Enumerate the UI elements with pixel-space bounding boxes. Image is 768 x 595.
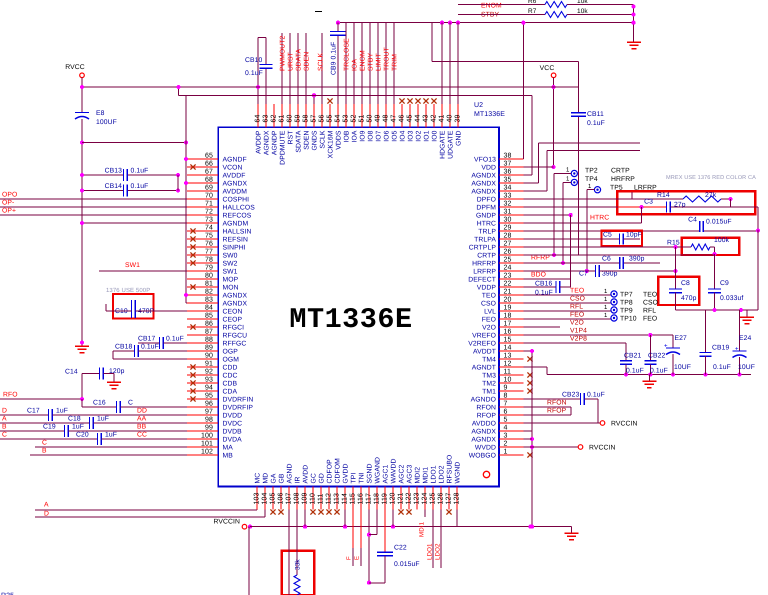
svg-text:1: 1 (604, 296, 608, 303)
svg-text:70: 70 (205, 192, 213, 199)
svg-text:73: 73 (205, 216, 213, 223)
svg-text:IO2: IO2 (416, 130, 423, 141)
svg-text:SCLK: SCLK (318, 52, 325, 71)
svg-text:C: C (128, 400, 133, 407)
svg-text:TM3: TM3 (482, 372, 496, 379)
svg-text:C8: C8 (681, 280, 690, 287)
svg-text:127: 127 (445, 493, 452, 505)
svg-text:44: 44 (414, 115, 421, 123)
svg-text:28: 28 (504, 232, 512, 239)
svg-text:60: 60 (286, 115, 293, 123)
svg-text:FEO: FEO (643, 316, 657, 323)
svg-text:32: 32 (504, 200, 512, 207)
svg-text:TPI: TPI (351, 473, 358, 484)
svg-text:IO0: IO0 (432, 130, 439, 141)
svg-text:65: 65 (205, 152, 213, 159)
svg-text:10UF: 10UF (674, 364, 691, 371)
svg-text:16: 16 (504, 328, 512, 335)
svg-text:MDI1: MDI1 (423, 467, 430, 484)
svg-text:RVCCIN: RVCCIN (611, 421, 638, 428)
svg-text:MB: MB (223, 452, 234, 459)
svg-text:TRLPA: TRLPA (474, 236, 496, 243)
svg-text:B: B (2, 424, 7, 431)
svg-text:OGP: OGP (223, 348, 239, 355)
svg-text:CB17: CB17 (138, 336, 156, 343)
svg-text:117: 117 (365, 493, 372, 504)
svg-text:C4: C4 (688, 217, 697, 224)
svg-text:114: 114 (341, 493, 348, 504)
svg-text:10k: 10k (577, 0, 588, 5)
svg-text:MA: MA (223, 444, 234, 451)
svg-text:V2O: V2O (482, 324, 496, 331)
svg-text:27k: 27k (705, 192, 717, 199)
svg-text:75: 75 (205, 232, 213, 239)
svg-text:C20: C20 (76, 432, 89, 439)
svg-text:RFGCU: RFGCU (223, 332, 248, 339)
svg-text:GC: GC (311, 473, 318, 483)
svg-text:0.1uF: 0.1uF (131, 167, 149, 174)
svg-text:RFL: RFL (643, 308, 656, 315)
svg-text:37: 37 (504, 160, 512, 167)
svg-text:85: 85 (205, 312, 213, 319)
svg-text:SINPHI: SINPHI (223, 244, 246, 251)
svg-text:AGNDX: AGNDX (471, 180, 496, 187)
svg-text:MDI2: MDI2 (415, 467, 422, 484)
svg-text:IO8: IO8 (368, 130, 375, 141)
svg-text:1uF: 1uF (105, 432, 117, 439)
svg-text:AA: AA (137, 416, 147, 423)
svg-text:OGM: OGM (223, 356, 240, 363)
svg-text:AGNDO: AGNDO (471, 396, 496, 403)
svg-text:3: 3 (504, 432, 508, 439)
svg-text:50: 50 (366, 115, 373, 123)
svg-text:TEO: TEO (643, 292, 657, 299)
svg-text:WVDD: WVDD (475, 444, 496, 451)
svg-text:27: 27 (504, 240, 512, 247)
svg-text:66: 66 (205, 160, 213, 167)
svg-text:45: 45 (406, 115, 413, 123)
svg-text:TP7: TP7 (620, 292, 633, 299)
svg-text:109: 109 (301, 493, 308, 505)
svg-text:E27: E27 (675, 335, 688, 342)
svg-text:SW1: SW1 (223, 268, 238, 275)
svg-text:1uF: 1uF (56, 408, 68, 415)
svg-text:100: 100 (201, 432, 213, 439)
svg-text:C22: C22 (394, 545, 407, 552)
svg-text:RFSUBO: RFSUBO (447, 455, 454, 484)
svg-text:IO7: IO7 (376, 130, 383, 141)
svg-text:LDO2: LDO2 (439, 465, 446, 483)
svg-text:IO6: IO6 (384, 130, 391, 141)
svg-text:69: 69 (205, 184, 213, 191)
svg-text:0.1uF: 0.1uF (166, 336, 184, 343)
svg-text:TRIM: TRIM (392, 54, 399, 71)
svg-text:95: 95 (205, 392, 213, 399)
svg-text:TRCLOSE: TRCLOSE (344, 38, 351, 71)
svg-text:118: 118 (373, 493, 380, 504)
svg-text:71: 71 (205, 200, 213, 207)
svg-text:RFO: RFO (3, 392, 18, 399)
svg-text:12: 12 (504, 360, 512, 367)
svg-text:123: 123 (413, 493, 420, 505)
svg-text:25: 25 (504, 256, 512, 263)
svg-text:C17: C17 (27, 408, 40, 415)
svg-text:D: D (2, 408, 7, 415)
svg-text:GVDD: GVDD (343, 463, 350, 483)
svg-text:IO9: IO9 (360, 130, 367, 141)
svg-text:DD: DD (137, 408, 147, 415)
svg-text:IOB: IOB (344, 130, 351, 142)
svg-text:7: 7 (504, 400, 508, 407)
svg-text:120p: 120p (109, 368, 125, 375)
svg-text:FEO: FEO (482, 316, 496, 323)
svg-text:AGNDM: AGNDM (223, 220, 249, 227)
svg-text:C18: C18 (68, 416, 81, 423)
svg-text:DVDRFIN: DVDRFIN (223, 396, 254, 403)
svg-text:REFSIN: REFSIN (223, 236, 249, 243)
svg-text:CRTP: CRTP (477, 252, 496, 259)
svg-text:26: 26 (504, 248, 512, 255)
svg-text:0.1uF: 0.1uF (626, 368, 644, 375)
svg-text:64: 64 (254, 115, 261, 123)
svg-text:0.015uF: 0.015uF (706, 219, 732, 226)
svg-text:24: 24 (504, 264, 512, 271)
svg-text:AVDDO: AVDDO (472, 420, 496, 427)
svg-text:1376 USE 500P: 1376 USE 500P (106, 287, 150, 294)
svg-text:SDATA: SDATA (296, 130, 303, 153)
svg-text:AGNDX: AGNDX (471, 172, 496, 179)
svg-text:88: 88 (205, 336, 213, 343)
svg-text:AVDDF: AVDDF (223, 172, 246, 179)
svg-text:115: 115 (349, 493, 356, 504)
svg-text:IO5: IO5 (392, 130, 399, 141)
svg-text:HDGATE: HDGATE (440, 130, 447, 159)
svg-text:GNDP: GNDP (476, 212, 496, 219)
svg-text:VDDP: VDDP (477, 284, 497, 291)
svg-text:AGNDX: AGNDX (223, 180, 248, 187)
svg-text:125: 125 (429, 493, 436, 505)
svg-text:1: 1 (566, 176, 570, 183)
svg-text:98: 98 (205, 416, 213, 423)
svg-text:TP9: TP9 (620, 308, 633, 315)
svg-text:CB14: CB14 (105, 183, 123, 190)
svg-text:79: 79 (205, 264, 213, 271)
svg-text:SCLK: SCLK (320, 130, 327, 149)
svg-text:0.1uF: 0.1uF (587, 120, 605, 127)
svg-text:CB22: CB22 (648, 353, 666, 360)
svg-text:91: 91 (205, 360, 213, 367)
svg-text:15: 15 (504, 336, 512, 343)
svg-text:AGNDX: AGNDX (471, 428, 496, 435)
svg-text:CEON: CEON (223, 308, 243, 315)
svg-text:UDGATE: UDGATE (448, 130, 455, 159)
svg-text:101: 101 (201, 440, 213, 447)
svg-text:C: C (2, 432, 7, 439)
svg-text:V2REFO: V2REFO (468, 340, 496, 347)
svg-text:GNDS: GNDS (312, 130, 319, 150)
svg-text:CB18: CB18 (115, 344, 133, 351)
svg-text:4: 4 (504, 424, 508, 431)
svg-text:C19: C19 (43, 424, 56, 431)
svg-text:390p: 390p (602, 271, 618, 278)
svg-text:11: 11 (504, 368, 511, 375)
svg-text:14: 14 (504, 344, 512, 351)
svg-text:AGC2: AGC2 (399, 464, 406, 483)
svg-text:A: A (2, 416, 7, 423)
svg-text:RFRP: RFRP (531, 255, 550, 262)
svg-text:A: A (44, 502, 49, 509)
svg-text:AGNDX: AGNDX (264, 130, 271, 155)
svg-text:46: 46 (398, 115, 405, 123)
svg-text:43: 43 (422, 115, 429, 123)
svg-text:1uF: 1uF (97, 416, 109, 423)
svg-text:CB10: CB10 (245, 57, 263, 64)
svg-text:AGNDX: AGNDX (471, 188, 496, 195)
svg-text:GND: GND (456, 131, 463, 146)
svg-text:DPFO: DPFO (477, 196, 496, 203)
svg-text:CSO: CSO (570, 296, 585, 303)
svg-text:CC: CC (137, 432, 147, 439)
svg-text:COSPHI: COSPHI (223, 196, 250, 203)
svg-text:DVDC: DVDC (223, 420, 243, 427)
svg-text:RFON: RFON (476, 404, 496, 411)
svg-text:1: 1 (604, 288, 608, 295)
svg-text:DVDB: DVDB (223, 428, 243, 435)
svg-text:0.1uF: 0.1uF (141, 344, 159, 351)
svg-text:10UF: 10UF (738, 364, 755, 371)
svg-text:C7: C7 (579, 271, 588, 278)
svg-text:BDO: BDO (531, 272, 546, 279)
svg-text:59: 59 (294, 115, 301, 123)
svg-text:DPDMUTE: DPDMUTE (280, 130, 287, 165)
svg-text:10: 10 (504, 376, 512, 383)
svg-text:R15: R15 (667, 240, 680, 247)
svg-text:SDEN: SDEN (304, 131, 311, 150)
svg-text:HRFRP: HRFRP (611, 176, 635, 183)
svg-text:20: 20 (504, 296, 512, 303)
svg-text:IO4: IO4 (400, 130, 407, 141)
svg-text:72: 72 (205, 208, 213, 215)
svg-text:0.1uF: 0.1uF (650, 368, 668, 375)
svg-text:470p: 470p (681, 295, 697, 302)
svg-text:29: 29 (504, 224, 512, 231)
svg-text:36: 36 (504, 168, 512, 175)
svg-text:87: 87 (205, 328, 213, 335)
svg-text:68: 68 (205, 176, 213, 183)
svg-text:CSO: CSO (481, 300, 496, 307)
svg-text:RFL: RFL (570, 304, 583, 311)
svg-text:18: 18 (504, 312, 512, 319)
svg-text:CB19: CB19 (712, 344, 730, 351)
svg-text:HTRC: HTRC (477, 220, 496, 227)
svg-text:38: 38 (504, 152, 512, 159)
svg-text:102: 102 (201, 448, 213, 455)
svg-text:AGNDX: AGNDX (223, 292, 248, 299)
svg-text:34: 34 (504, 184, 512, 191)
svg-text:111: 111 (317, 494, 324, 505)
svg-text:RVCCIN: RVCCIN (213, 519, 240, 526)
svg-text:LDO1: LDO1 (431, 465, 438, 483)
svg-text:104: 104 (261, 493, 268, 505)
svg-text:116: 116 (357, 493, 364, 504)
svg-text:0.1uF: 0.1uF (131, 183, 149, 190)
svg-text:MT1336E: MT1336E (474, 111, 505, 118)
svg-text:IOA: IOA (352, 59, 359, 71)
svg-text:CDB: CDB (223, 380, 238, 387)
svg-text:AVDD: AVDD (303, 465, 310, 484)
svg-text:RVCCIN: RVCCIN (589, 445, 616, 452)
svg-text:58: 58 (302, 115, 309, 123)
svg-text:AGNDP: AGNDP (272, 130, 279, 155)
svg-text:WGAND: WGAND (375, 457, 382, 484)
svg-text:120: 120 (389, 493, 396, 505)
svg-text:TP4: TP4 (585, 176, 598, 183)
svg-text:TM4: TM4 (482, 356, 496, 363)
svg-text:94: 94 (205, 384, 213, 391)
svg-text:CRTP: CRTP (611, 167, 630, 174)
svg-text:86: 86 (205, 320, 213, 327)
svg-text:TEO: TEO (570, 288, 584, 295)
svg-text:WGND: WGND (455, 462, 462, 484)
svg-text:0.015uF: 0.015uF (394, 561, 420, 568)
svg-text:81: 81 (205, 280, 213, 287)
svg-text:C6: C6 (602, 256, 611, 263)
svg-text:DPFM: DPFM (476, 204, 496, 211)
svg-text:48: 48 (382, 115, 389, 123)
svg-text:AGC3: AGC3 (407, 464, 414, 483)
svg-text:AGNDX: AGNDX (223, 300, 248, 307)
svg-text:84: 84 (205, 304, 213, 311)
svg-text:SDATA: SDATA (296, 48, 303, 71)
svg-text:TM2: TM2 (482, 380, 496, 387)
svg-text:AVDDP: AVDDP (256, 130, 263, 154)
svg-text:AGND: AGND (287, 463, 294, 483)
svg-text:90: 90 (205, 352, 213, 359)
svg-text:1: 1 (588, 183, 592, 190)
svg-text:62: 62 (270, 115, 277, 123)
svg-text:41: 41 (438, 115, 445, 123)
svg-text:TP2: TP2 (585, 167, 598, 174)
svg-text:R6: R6 (528, 0, 537, 5)
svg-text:2: 2 (504, 440, 508, 447)
svg-text:SGND: SGND (367, 463, 374, 483)
svg-text:GB: GB (279, 473, 286, 483)
svg-text:10k: 10k (577, 8, 588, 15)
svg-text:RFOP: RFOP (547, 408, 567, 415)
svg-text:CRTPLP: CRTPLP (469, 244, 497, 251)
svg-text:93: 93 (205, 376, 213, 383)
svg-text:19: 19 (504, 304, 512, 311)
svg-text:33k: 33k (295, 559, 302, 570)
svg-text:MD: MD (263, 473, 270, 484)
svg-text:+: + (735, 347, 739, 353)
svg-text:17: 17 (504, 320, 512, 327)
svg-text:13: 13 (504, 352, 512, 359)
svg-text:119: 119 (381, 493, 388, 504)
svg-text:CB11: CB11 (587, 111, 604, 118)
svg-text:+: + (664, 344, 668, 350)
svg-text:128: 128 (453, 493, 460, 505)
svg-text:96: 96 (205, 400, 213, 407)
svg-text:1: 1 (604, 304, 608, 311)
svg-text:CB9 0.1uF: CB9 0.1uF (331, 42, 338, 75)
svg-text:TM1: TM1 (482, 388, 496, 395)
svg-text:10pF: 10pF (626, 232, 642, 239)
svg-text:5: 5 (504, 416, 508, 423)
svg-text:77: 77 (205, 248, 213, 255)
svg-text:SW0: SW0 (223, 252, 238, 259)
svg-text:52: 52 (350, 115, 357, 123)
svg-text:CEOP: CEOP (223, 316, 243, 323)
svg-text:1: 1 (604, 312, 608, 319)
svg-text:21: 21 (504, 288, 512, 295)
svg-text:42: 42 (430, 115, 437, 123)
svg-text:CB23: CB23 (562, 391, 580, 398)
svg-text:39: 39 (454, 115, 461, 123)
svg-text:LRFRP: LRFRP (473, 268, 496, 275)
svg-text:49: 49 (374, 115, 381, 123)
svg-text:IR: IR (295, 477, 302, 484)
svg-text:1: 1 (566, 167, 570, 174)
svg-text:SW1: SW1 (125, 262, 140, 269)
svg-text:113: 113 (333, 493, 340, 504)
svg-text:E24: E24 (739, 335, 752, 342)
svg-text:56: 56 (318, 115, 325, 123)
svg-text:MC: MC (255, 473, 262, 484)
svg-text:CDD: CDD (223, 364, 238, 371)
svg-text:RFOP: RFOP (477, 412, 497, 419)
svg-text:122: 122 (405, 493, 412, 505)
svg-text:CDFOP: CDFOP (327, 459, 334, 484)
svg-text:E8: E8 (96, 110, 105, 117)
svg-text:C3: C3 (644, 198, 653, 205)
svg-text:9: 9 (504, 384, 508, 391)
svg-text:82: 82 (205, 288, 213, 295)
svg-text:TROUT: TROUT (384, 47, 391, 71)
svg-text:78: 78 (205, 256, 213, 263)
svg-text:URST: URST (288, 52, 295, 71)
svg-text:CB13: CB13 (105, 167, 123, 174)
svg-text:VCON: VCON (223, 164, 243, 171)
svg-text:390p: 390p (629, 256, 645, 263)
svg-text:FEO: FEO (570, 312, 584, 319)
svg-text:DVDD: DVDD (223, 412, 243, 419)
svg-text:VDD: VDD (481, 164, 496, 171)
svg-text:106: 106 (277, 493, 284, 505)
svg-text:8: 8 (504, 392, 508, 399)
svg-text:89: 89 (205, 344, 213, 351)
svg-text:99: 99 (205, 424, 213, 431)
svg-text:CDC: CDC (223, 372, 238, 379)
svg-text:0.1uF: 0.1uF (713, 364, 731, 371)
svg-text:AVDDM: AVDDM (223, 188, 248, 195)
svg-text:GD: GD (319, 473, 326, 483)
svg-text:DVDA: DVDA (223, 436, 243, 443)
svg-text:47: 47 (390, 115, 397, 123)
svg-text:TP10: TP10 (620, 316, 637, 323)
svg-text:6: 6 (504, 408, 508, 415)
svg-text:1uF: 1uF (72, 424, 84, 431)
svg-text:33: 33 (504, 192, 512, 199)
svg-text:CDA: CDA (223, 388, 238, 395)
svg-text:74: 74 (205, 224, 213, 231)
svg-text:XCK16M: XCK16M (328, 130, 335, 158)
svg-text:BB: BB (137, 424, 147, 431)
svg-text:DVDRFIP: DVDRFIP (223, 404, 254, 411)
svg-text:30: 30 (504, 216, 512, 223)
svg-text:AGNDT: AGNDT (472, 364, 496, 371)
svg-text:100UF: 100UF (96, 119, 117, 126)
